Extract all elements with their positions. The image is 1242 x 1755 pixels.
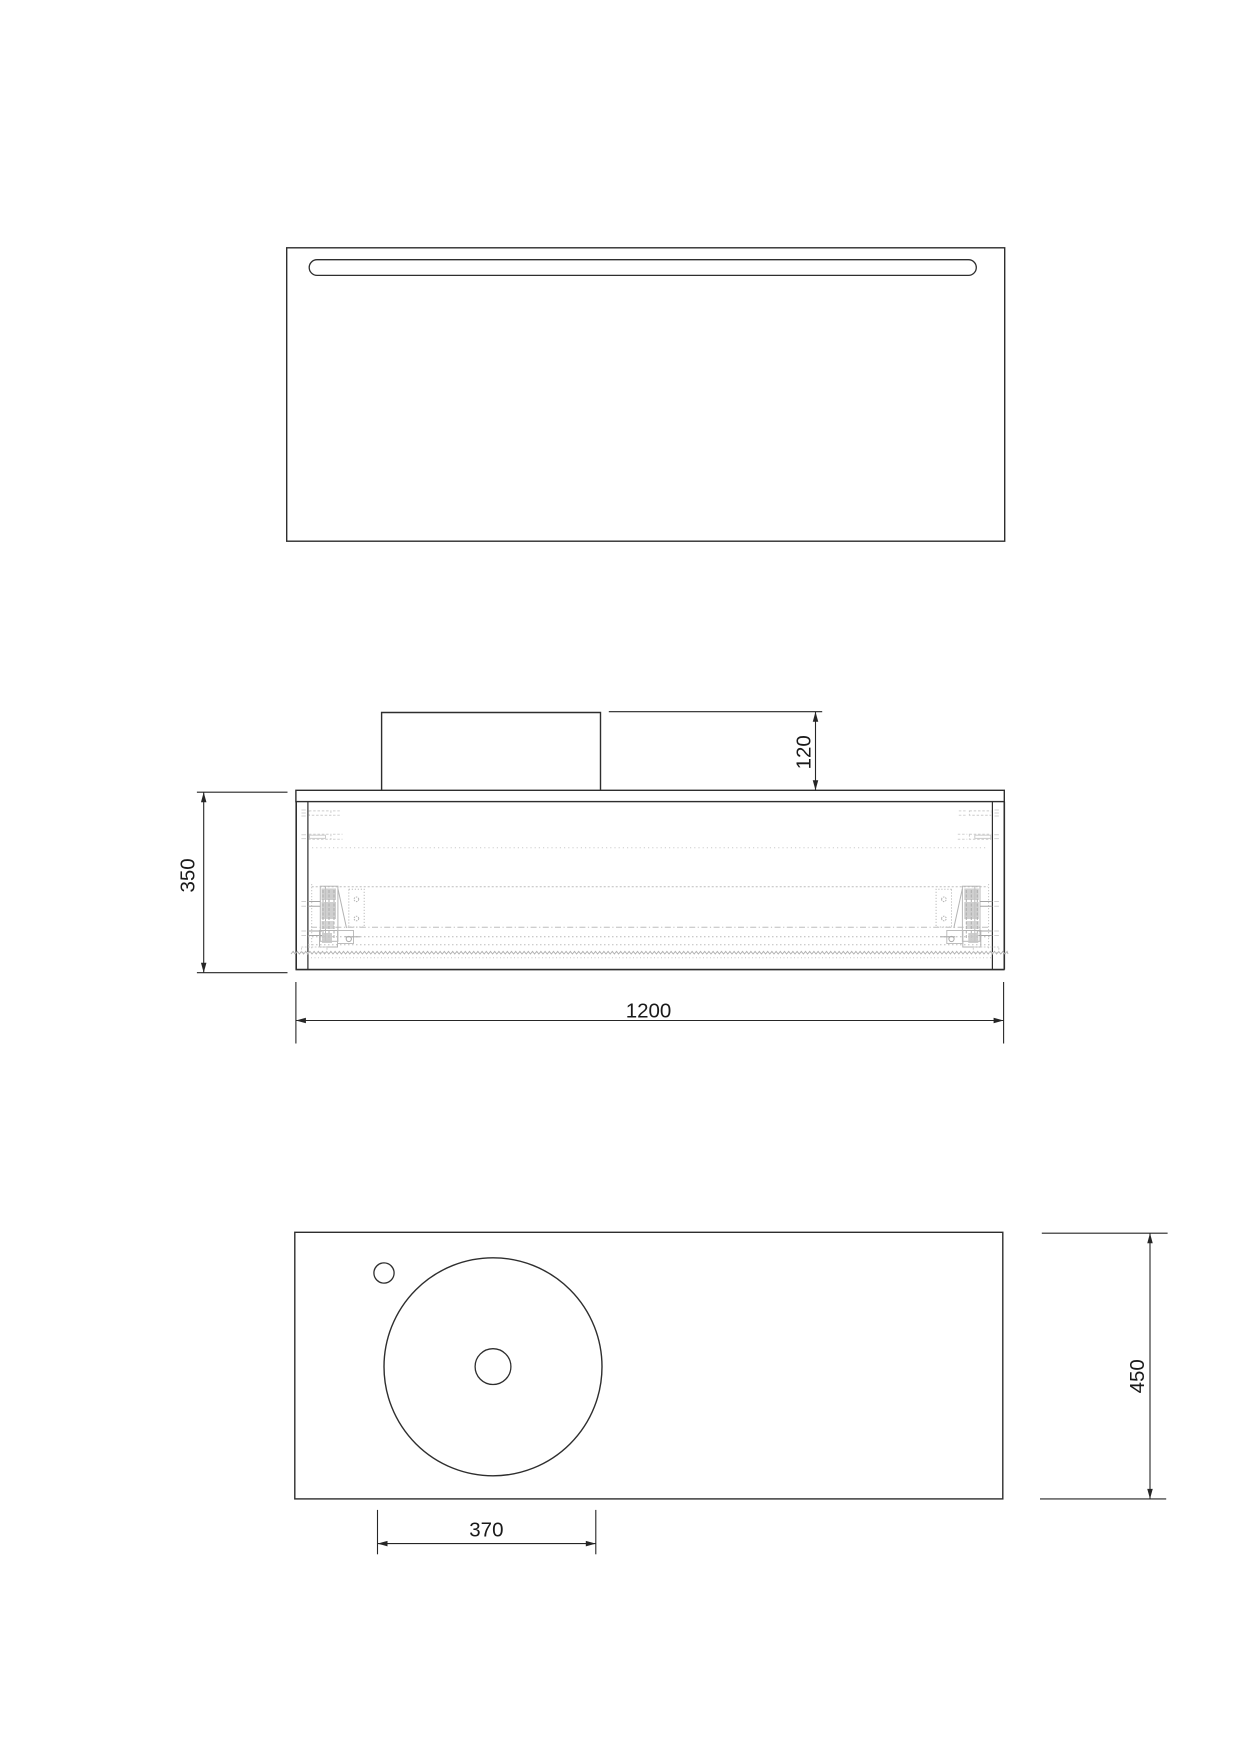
svg-text:120: 120: [792, 735, 815, 769]
svg-text:1200: 1200: [626, 1000, 672, 1023]
svg-text:350: 350: [177, 858, 200, 892]
svg-text:450: 450: [1126, 1359, 1149, 1393]
svg-text:370: 370: [469, 1518, 503, 1541]
